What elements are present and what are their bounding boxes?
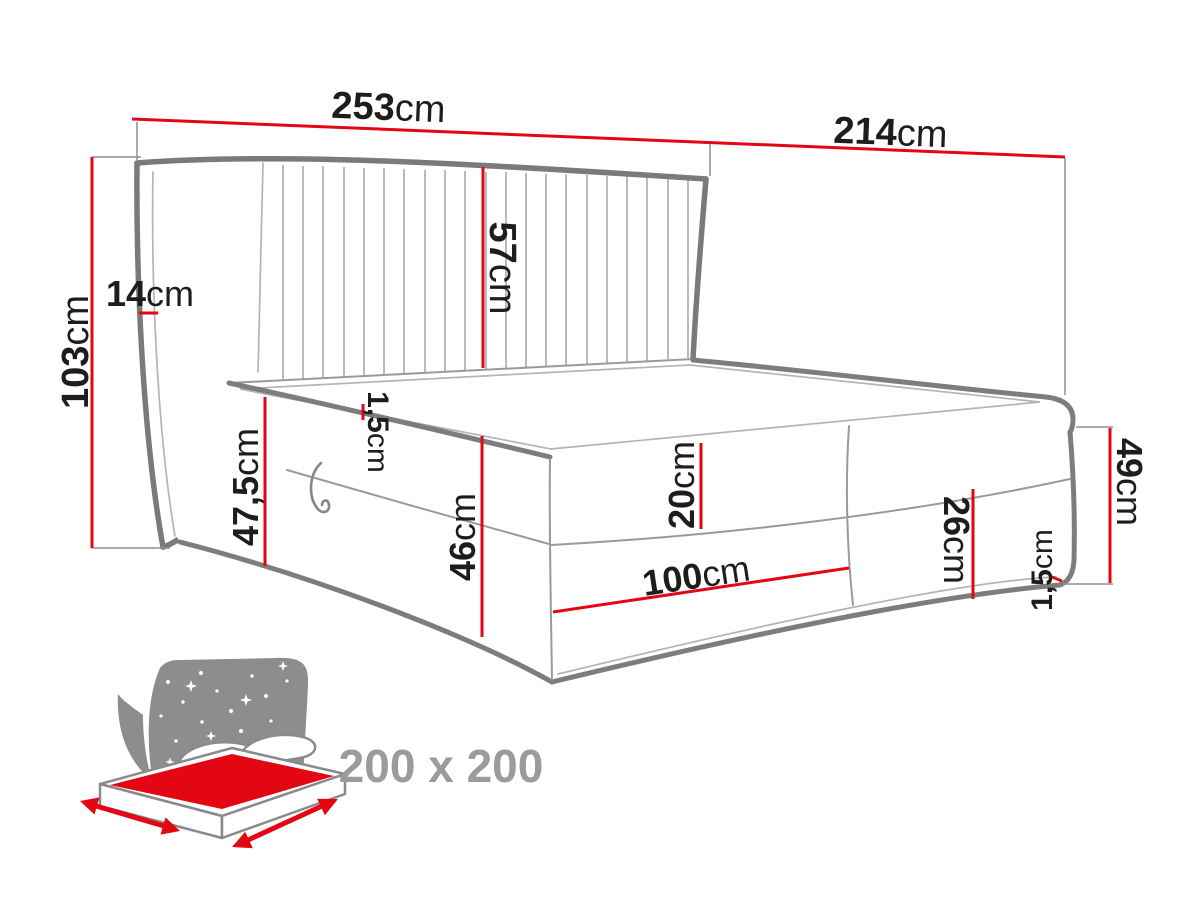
label-top-piping: 1,5cm bbox=[361, 391, 394, 473]
label-headboard-height: 103cm bbox=[55, 295, 97, 409]
label-side-height: 47,5cm bbox=[225, 428, 266, 546]
size-badge: 200 x 200 bbox=[339, 740, 544, 792]
bed-with-starry-headboard-icon bbox=[80, 658, 345, 848]
label-foot-total-height: 49cm bbox=[1109, 438, 1150, 526]
label-foot-panel-height: 26cm bbox=[936, 496, 977, 584]
bed-diagram-svg: 253cm 214cm 103cm 14cm 57cm 1,5cm 47,5cm… bbox=[0, 0, 1200, 900]
bed-foot-face bbox=[550, 432, 1074, 682]
dimension-diagram: 253cm 214cm 103cm 14cm 57cm 1,5cm 47,5cm… bbox=[0, 0, 1200, 900]
label-wing-depth: 14cm bbox=[106, 273, 194, 314]
label-width-total: 253cm bbox=[331, 85, 447, 132]
label-headboard-panel: 57cm bbox=[481, 222, 523, 315]
label-topper-height: 20cm bbox=[661, 441, 702, 529]
label-box-height: 46cm bbox=[442, 493, 483, 581]
label-depth-total: 214cm bbox=[833, 110, 949, 157]
label-bottom-piping: 1,5cm bbox=[1026, 529, 1059, 611]
icon-headboard-swoosh bbox=[118, 694, 152, 780]
